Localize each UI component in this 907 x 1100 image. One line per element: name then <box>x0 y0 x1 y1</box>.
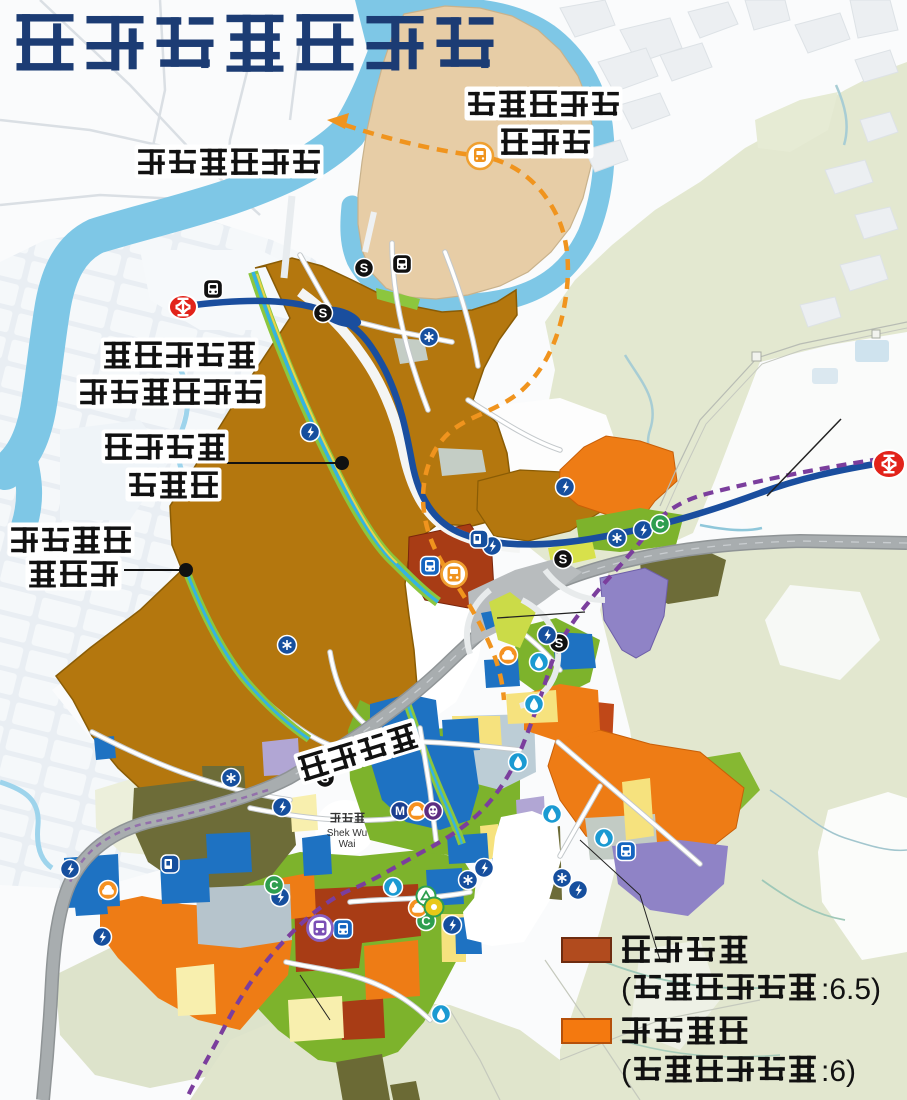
svg-text:(: ( <box>621 1053 632 1088</box>
svg-text:S: S <box>360 261 369 276</box>
svg-text:S: S <box>319 306 328 321</box>
svg-text:Shek Wu: Shek Wu <box>327 828 367 839</box>
svg-text::6): :6) <box>821 1055 856 1088</box>
svg-text::6.5): :6.5) <box>821 973 881 1006</box>
svg-text:(: ( <box>621 971 632 1006</box>
svg-text:C: C <box>655 517 665 532</box>
svg-text:Wai: Wai <box>339 839 356 850</box>
svg-text:C: C <box>269 878 279 893</box>
svg-text:M: M <box>395 804 405 818</box>
svg-text:S: S <box>559 552 568 567</box>
